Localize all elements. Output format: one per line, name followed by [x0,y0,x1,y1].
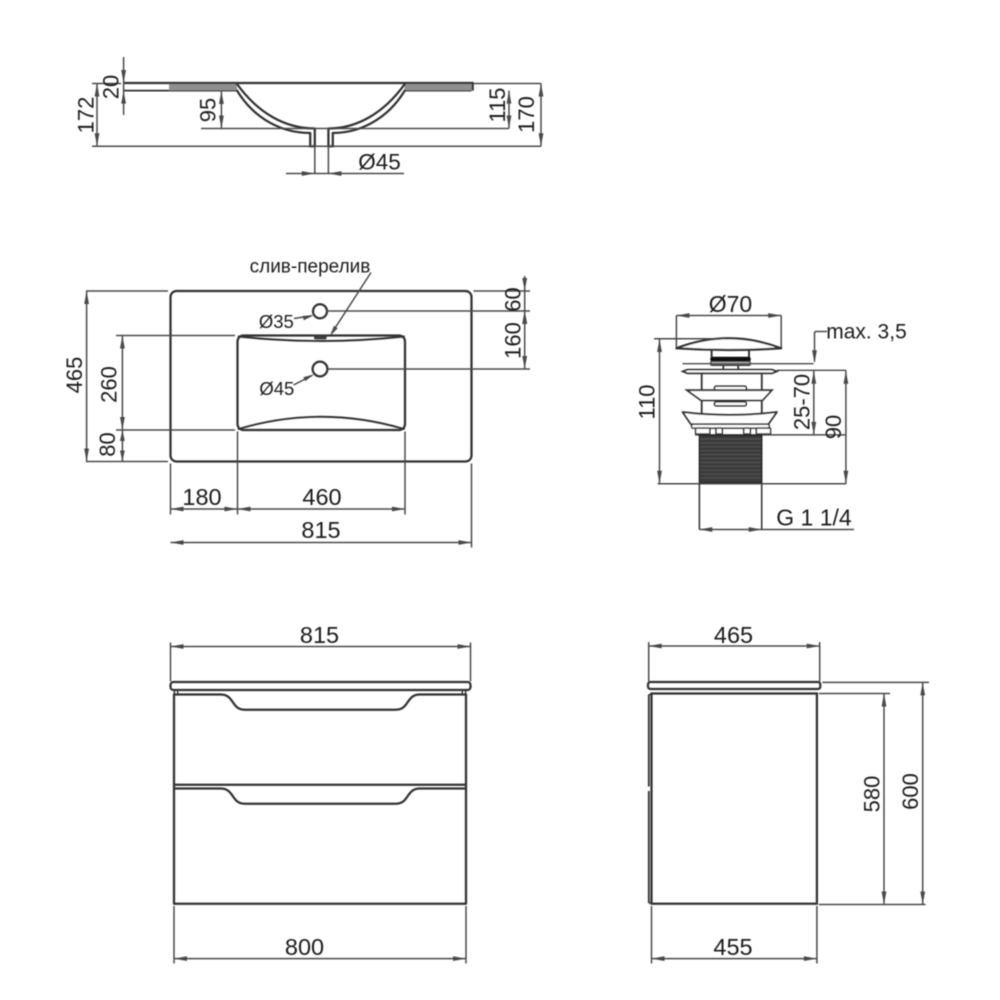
svg-text:60: 60 [500,287,525,311]
svg-text:80: 80 [95,432,120,456]
svg-text:95: 95 [195,98,220,122]
svg-text:слив-перелив: слив-перелив [250,257,371,278]
svg-text:580: 580 [859,776,884,813]
svg-text:260: 260 [96,366,121,403]
svg-text:600: 600 [898,773,923,810]
svg-text:90: 90 [821,415,846,439]
svg-text:Ø35: Ø35 [259,311,294,332]
svg-text:115: 115 [485,87,510,122]
svg-text:455: 455 [713,934,752,960]
svg-text:160: 160 [500,322,525,359]
svg-text:460: 460 [302,484,341,510]
svg-text:180: 180 [182,484,221,510]
svg-text:110: 110 [634,384,659,419]
svg-text:172: 172 [73,97,98,134]
svg-text:Ø45: Ø45 [358,150,401,175]
svg-text:465: 465 [714,622,753,648]
svg-text:800: 800 [285,934,324,960]
svg-text:Ø45: Ø45 [259,378,294,399]
svg-text:25-70: 25-70 [789,374,814,430]
svg-text:Ø70: Ø70 [709,291,752,317]
svg-text:G 1 1/4: G 1 1/4 [776,504,852,530]
svg-text:20: 20 [98,75,123,99]
svg-text:815: 815 [301,517,340,543]
svg-text:max. 3,5: max. 3,5 [826,321,907,344]
svg-text:170: 170 [514,96,539,133]
svg-text:815: 815 [300,622,339,648]
svg-text:465: 465 [62,357,87,394]
